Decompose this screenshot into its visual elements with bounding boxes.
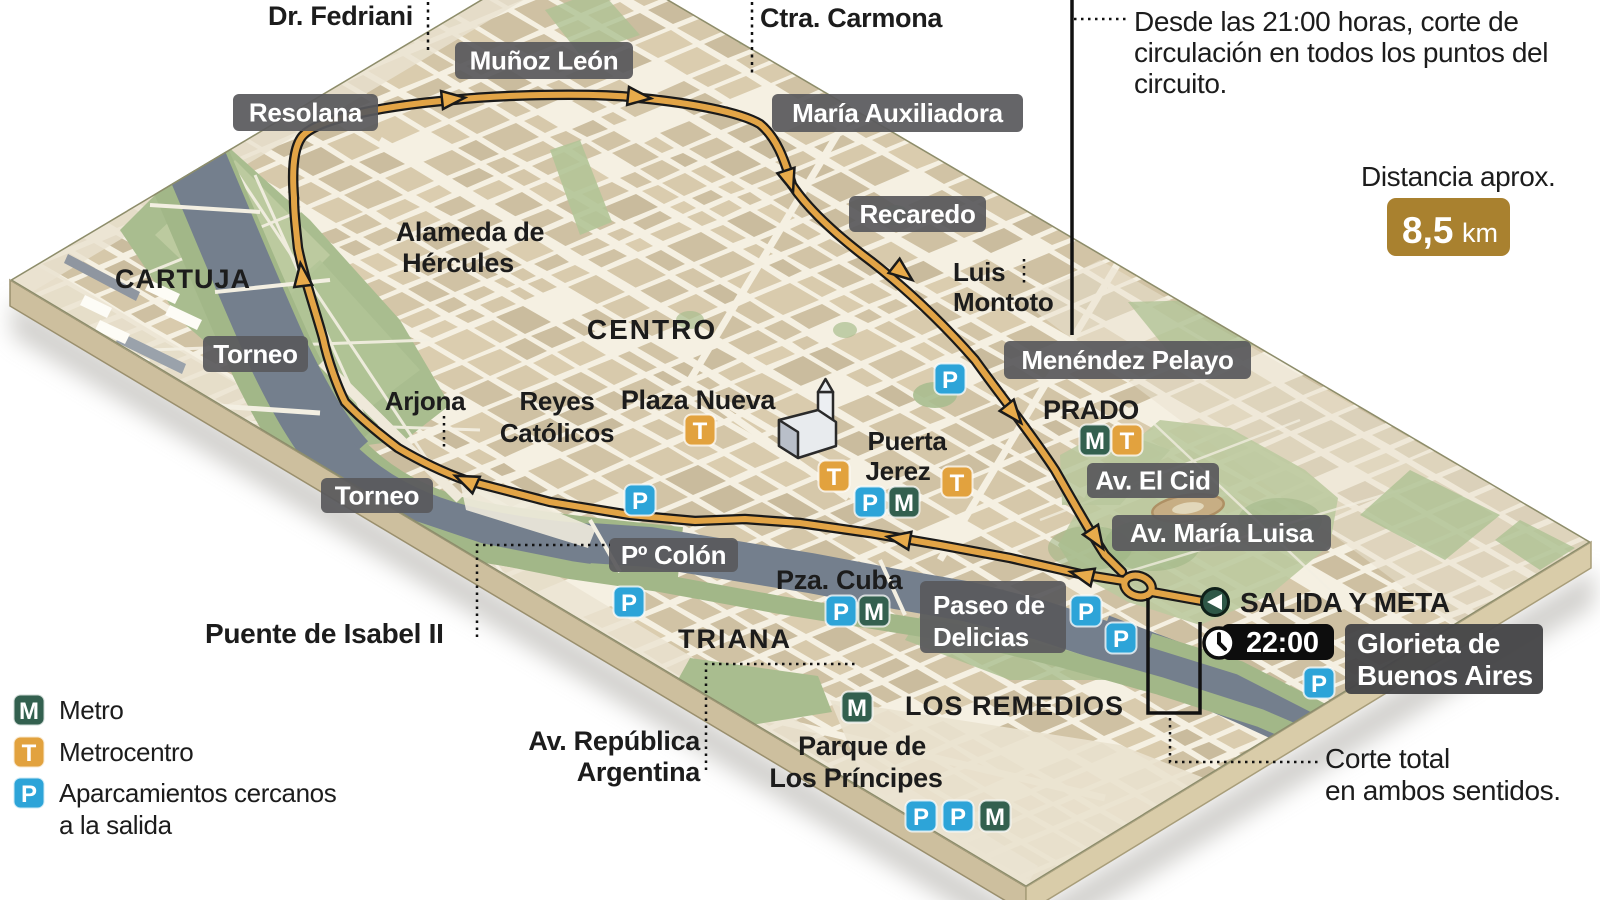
svg-text:22:00: 22:00 bbox=[1246, 627, 1319, 659]
svg-text:Aparcamientos cercanos: Aparcamientos cercanos bbox=[59, 778, 337, 808]
svg-text:Buenos Aires: Buenos Aires bbox=[1357, 660, 1533, 691]
svg-text:Paseo de: Paseo de bbox=[933, 590, 1045, 620]
svg-text:Dr. Fedriani: Dr. Fedriani bbox=[268, 1, 413, 31]
svg-text:Distancia aprox.: Distancia aprox. bbox=[1361, 161, 1555, 192]
svg-text:Hércules: Hércules bbox=[402, 248, 514, 278]
svg-text:TRIANA: TRIANA bbox=[678, 624, 792, 654]
svg-text:Argentina: Argentina bbox=[577, 757, 702, 787]
svg-text:Av. El Cid: Av. El Cid bbox=[1095, 466, 1210, 496]
svg-text:km: km bbox=[1462, 218, 1498, 248]
svg-text:Menéndez Pelayo: Menéndez Pelayo bbox=[1021, 345, 1233, 375]
svg-text:Torneo: Torneo bbox=[335, 481, 419, 511]
svg-text:Resolana: Resolana bbox=[249, 98, 363, 128]
svg-text:circulación en todos los punto: circulación en todos los puntos del bbox=[1134, 37, 1548, 68]
svg-text:María Auxiliadora: María Auxiliadora bbox=[792, 98, 1004, 128]
svg-text:Torneo: Torneo bbox=[213, 339, 297, 369]
svg-text:PRADO: PRADO bbox=[1043, 395, 1139, 425]
svg-text:Montoto: Montoto bbox=[953, 287, 1053, 317]
svg-text:Glorieta de: Glorieta de bbox=[1357, 628, 1500, 659]
svg-text:Metrocentro: Metrocentro bbox=[59, 737, 193, 767]
svg-text:Av. República: Av. República bbox=[528, 726, 701, 756]
svg-text:Parque de: Parque de bbox=[798, 731, 926, 761]
svg-text:Católicos: Católicos bbox=[500, 418, 614, 448]
svg-text:Pza. Cuba: Pza. Cuba bbox=[776, 565, 904, 595]
svg-text:Av. María Luisa: Av. María Luisa bbox=[1130, 518, 1314, 548]
svg-text:Metro: Metro bbox=[59, 695, 123, 725]
svg-text:Alameda de: Alameda de bbox=[396, 217, 545, 247]
svg-text:Plaza Nueva: Plaza Nueva bbox=[621, 385, 777, 415]
svg-text:Ctra. Carmona: Ctra. Carmona bbox=[760, 3, 943, 33]
svg-text:Delicias: Delicias bbox=[933, 622, 1029, 652]
svg-text:Recaredo: Recaredo bbox=[859, 199, 975, 229]
svg-text:a la salida: a la salida bbox=[59, 810, 173, 840]
svg-text:SALIDA Y META: SALIDA Y META bbox=[1240, 587, 1450, 618]
svg-text:LOS REMEDIOS: LOS REMEDIOS bbox=[905, 691, 1124, 721]
svg-text:Puente de Isabel II: Puente de Isabel II bbox=[205, 618, 444, 649]
svg-text:Corte total: Corte total bbox=[1325, 743, 1450, 774]
svg-text:8,5: 8,5 bbox=[1402, 210, 1453, 251]
svg-text:Arjona: Arjona bbox=[385, 386, 466, 416]
svg-text:Muñoz León: Muñoz León bbox=[470, 46, 619, 76]
svg-text:Jerez: Jerez bbox=[866, 456, 931, 486]
svg-text:CARTUJA: CARTUJA bbox=[115, 264, 251, 294]
svg-text:Reyes: Reyes bbox=[519, 386, 594, 416]
svg-text:Desde las 21:00 horas, corte d: Desde las 21:00 horas, corte de bbox=[1134, 6, 1519, 37]
svg-text:circuito.: circuito. bbox=[1134, 68, 1227, 99]
svg-text:Pº Colón: Pº Colón bbox=[621, 540, 726, 570]
svg-text:Luis: Luis bbox=[953, 257, 1005, 287]
svg-text:en ambos sentidos.: en ambos sentidos. bbox=[1325, 775, 1561, 806]
svg-text:Puerta: Puerta bbox=[867, 426, 947, 456]
svg-text:Los Príncipes: Los Príncipes bbox=[769, 763, 942, 793]
svg-text:CENTRO: CENTRO bbox=[587, 314, 717, 345]
